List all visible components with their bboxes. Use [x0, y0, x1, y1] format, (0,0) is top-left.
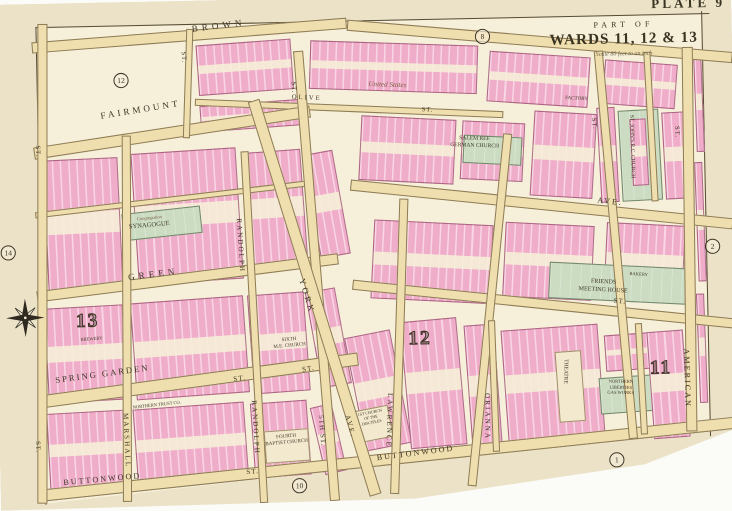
street-label-lawrence-23: LAWRENCE [384, 393, 393, 448]
open-lot-block [555, 350, 586, 423]
compass-rose-icon [5, 297, 46, 338]
plate-ref-1: 1 [609, 452, 624, 467]
landmark-united-states-0: United States [368, 80, 406, 90]
landmark-northern-13: NORTHERNLIBERTIESGAS WORKS [607, 379, 634, 396]
ward-number-11: 11 [650, 357, 673, 380]
landmark-st-john-s-r-c-church-3: ST. JOHN'S R.C. CHURCH [627, 115, 635, 179]
street-label-olive-1: OLIVE [292, 95, 322, 103]
city-block [602, 59, 678, 109]
street-label-st-19: ST. [289, 81, 297, 93]
plate-ref-10: 10 [292, 478, 307, 493]
street-label-st-11: ST. [246, 468, 259, 476]
landmark-salem-ref-2: SALEM REF.GERMAN CHURCH [450, 135, 499, 150]
landmark-theatre-14: THEATRE [561, 359, 568, 384]
street-label-st-25: ST. [589, 118, 597, 130]
landmark-label-line: GERMAN CHURCH [450, 142, 499, 150]
street-label-st-14: ST. [33, 145, 40, 157]
street-label-orianna-24: ORIANNA [483, 393, 490, 440]
plate-number: PLATE 9 [618, 0, 726, 13]
ward-number-13: 13 [76, 310, 100, 333]
street-label-5th-st-20: 5TH ST. [317, 415, 327, 447]
plate-ref-14: 14 [0, 245, 15, 260]
street-label-st-26: ST. [673, 126, 680, 138]
landmark-label-line: GAS WORKS [607, 390, 634, 396]
atlas-map-plate: { "title_block": { "plate": "PLATE 9", "… [0, 0, 732, 500]
landmark-label-line: ST. JOHN'S R.C. CHURCH [627, 115, 635, 179]
street-label-st-2: ST. [421, 107, 433, 114]
city-block [195, 39, 294, 96]
city-block [530, 111, 598, 199]
street-sixth-street [37, 24, 47, 504]
street-label-american-27: AMERICAN [682, 348, 692, 408]
landmark-bakery-7: BAKERY [629, 271, 648, 278]
street-label-st-6: ST. [613, 297, 626, 305]
city-block [500, 324, 605, 442]
title-block: PART OF WARDS 11, 12 & 13 Scale 80 feet … [527, 18, 720, 59]
plate-ref-2: 2 [705, 239, 720, 254]
ward-number-12: 12 [408, 328, 432, 351]
map-plate-paper: BROWNOLIVEST.FAIRMOUNTAVE.GREENST.SPRING… [0, 0, 732, 511]
landmark-label-line: United States [368, 80, 406, 90]
street-label-st-13: ST. [179, 51, 186, 63]
landmark-factory-1: FACTORY [565, 96, 588, 103]
street-label-st-15: ST. [33, 441, 40, 453]
landmark-label-line: THEATRE [561, 359, 568, 384]
city-block [43, 157, 124, 292]
title-wards: WARDS 11, 12 & 13 [527, 29, 720, 50]
city-block [358, 115, 456, 184]
street-label-marshall-16: MARSHALL [121, 413, 131, 468]
landmark-label-line: BAKERY [629, 271, 648, 278]
landmark-label-line: FACTORY [565, 96, 588, 103]
landmark-friends-6: FRIENDSMEETING HOUSE [578, 278, 628, 296]
